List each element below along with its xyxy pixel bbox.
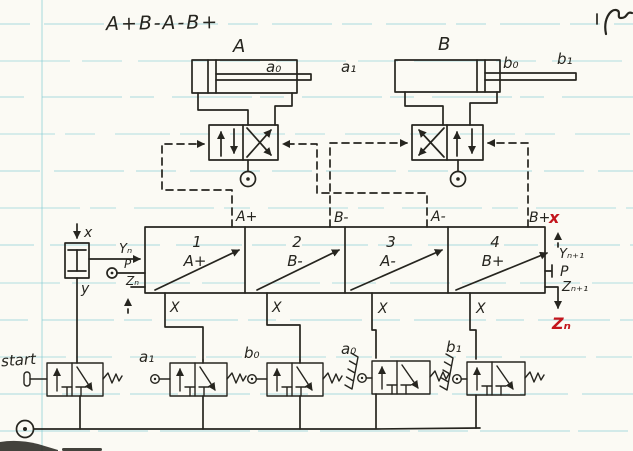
red-note-zn: Zₙ bbox=[551, 314, 571, 333]
sequence-title: A+B-A-B+ bbox=[104, 11, 220, 35]
yn1-label: Yₙ₊₁ bbox=[559, 247, 584, 262]
notebook-page: A+B-A-B+ A a₀ a₁ B b₀ b₁ bbox=[0, 0, 633, 451]
spring-icon bbox=[227, 373, 246, 383]
pilot-line-b-plus bbox=[488, 143, 528, 227]
valve-a bbox=[209, 125, 278, 187]
top-port-a-plus: A+ bbox=[235, 209, 257, 225]
pilot-line-a-minus bbox=[283, 144, 427, 227]
x-port-2: X bbox=[271, 300, 282, 316]
x-port-4: X bbox=[475, 301, 486, 317]
top-port-b-plus: B+ bbox=[529, 210, 550, 226]
cylinder-a-label: A bbox=[232, 36, 245, 57]
x-port-3: X bbox=[377, 301, 388, 317]
top-port-b-minus: B- bbox=[334, 210, 348, 226]
spring-icon bbox=[103, 373, 122, 383]
cell-3-num: 3 bbox=[386, 233, 396, 251]
zn1-down-arrow bbox=[545, 287, 558, 308]
yn-label: Yₙ bbox=[119, 242, 132, 257]
limit-valve-a0 bbox=[345, 353, 449, 394]
stepper-module bbox=[89, 227, 558, 360]
cell-1-num: 1 bbox=[192, 233, 202, 251]
start-valve bbox=[24, 363, 122, 396]
push-button-icon bbox=[24, 372, 30, 386]
supply-line bbox=[34, 428, 480, 429]
a1-valve-label: a₁ bbox=[139, 348, 154, 366]
sensor-a1-label: a₁ bbox=[341, 58, 356, 76]
spring-icon bbox=[525, 372, 544, 382]
sensor-b0-label: b₀ bbox=[503, 54, 519, 72]
limit-valve-a1 bbox=[151, 363, 246, 396]
x-port-1: X bbox=[169, 300, 180, 316]
cylinder-b-label: B bbox=[438, 34, 450, 55]
piston-rod-b bbox=[485, 73, 576, 80]
page-edge-smudge bbox=[0, 441, 102, 451]
p-plugged-port bbox=[545, 265, 552, 277]
port-line-a-right bbox=[275, 93, 292, 125]
cell-4-action: B+ bbox=[482, 252, 505, 270]
cylinder-a bbox=[192, 60, 311, 125]
wall-hatch-icon bbox=[440, 354, 453, 390]
p-right-label: P bbox=[560, 264, 569, 280]
zn1-label: Zₙ₊₁ bbox=[561, 280, 588, 295]
start-valve-label: start bbox=[0, 350, 37, 370]
cell-3-action: A- bbox=[379, 252, 396, 270]
x-step-3 bbox=[372, 293, 376, 358]
supply-bus bbox=[17, 360, 481, 438]
spring-icon bbox=[323, 373, 342, 383]
step-arrow-3 bbox=[351, 250, 442, 290]
cell-2-action: B- bbox=[287, 252, 302, 270]
a0-valve-label: a₀ bbox=[341, 340, 356, 358]
limit-valve-b0 bbox=[248, 363, 342, 396]
port-line-a-left bbox=[198, 93, 248, 125]
cell-2-num: 2 bbox=[292, 233, 302, 251]
limit-valve-b1 bbox=[440, 354, 544, 395]
p-left-label: P bbox=[124, 257, 132, 271]
cell-4-num: 4 bbox=[490, 233, 500, 251]
valve-b bbox=[412, 125, 483, 187]
red-note-x: x bbox=[548, 208, 560, 227]
sensor-b1-label: b₁ bbox=[557, 50, 573, 68]
aux-x-label: x bbox=[83, 225, 93, 241]
wall-hatch-icon bbox=[345, 353, 358, 389]
pneumatic-circuit-diagram: A+B-A-B+ A a₀ a₁ B b₀ b₁ bbox=[0, 0, 633, 451]
b0-valve-label: b₀ bbox=[244, 344, 260, 362]
pen-scribble bbox=[597, 10, 632, 34]
top-port-a-minus: A- bbox=[430, 209, 446, 225]
b1-valve-label: b₁ bbox=[446, 338, 462, 356]
cell-1-action: A+ bbox=[183, 252, 207, 270]
zn-left-label: Zₙ bbox=[125, 274, 139, 288]
sensor-a0-label: a₀ bbox=[266, 58, 281, 76]
aux-y-label: y bbox=[80, 281, 90, 297]
cylinder-b bbox=[395, 60, 576, 125]
